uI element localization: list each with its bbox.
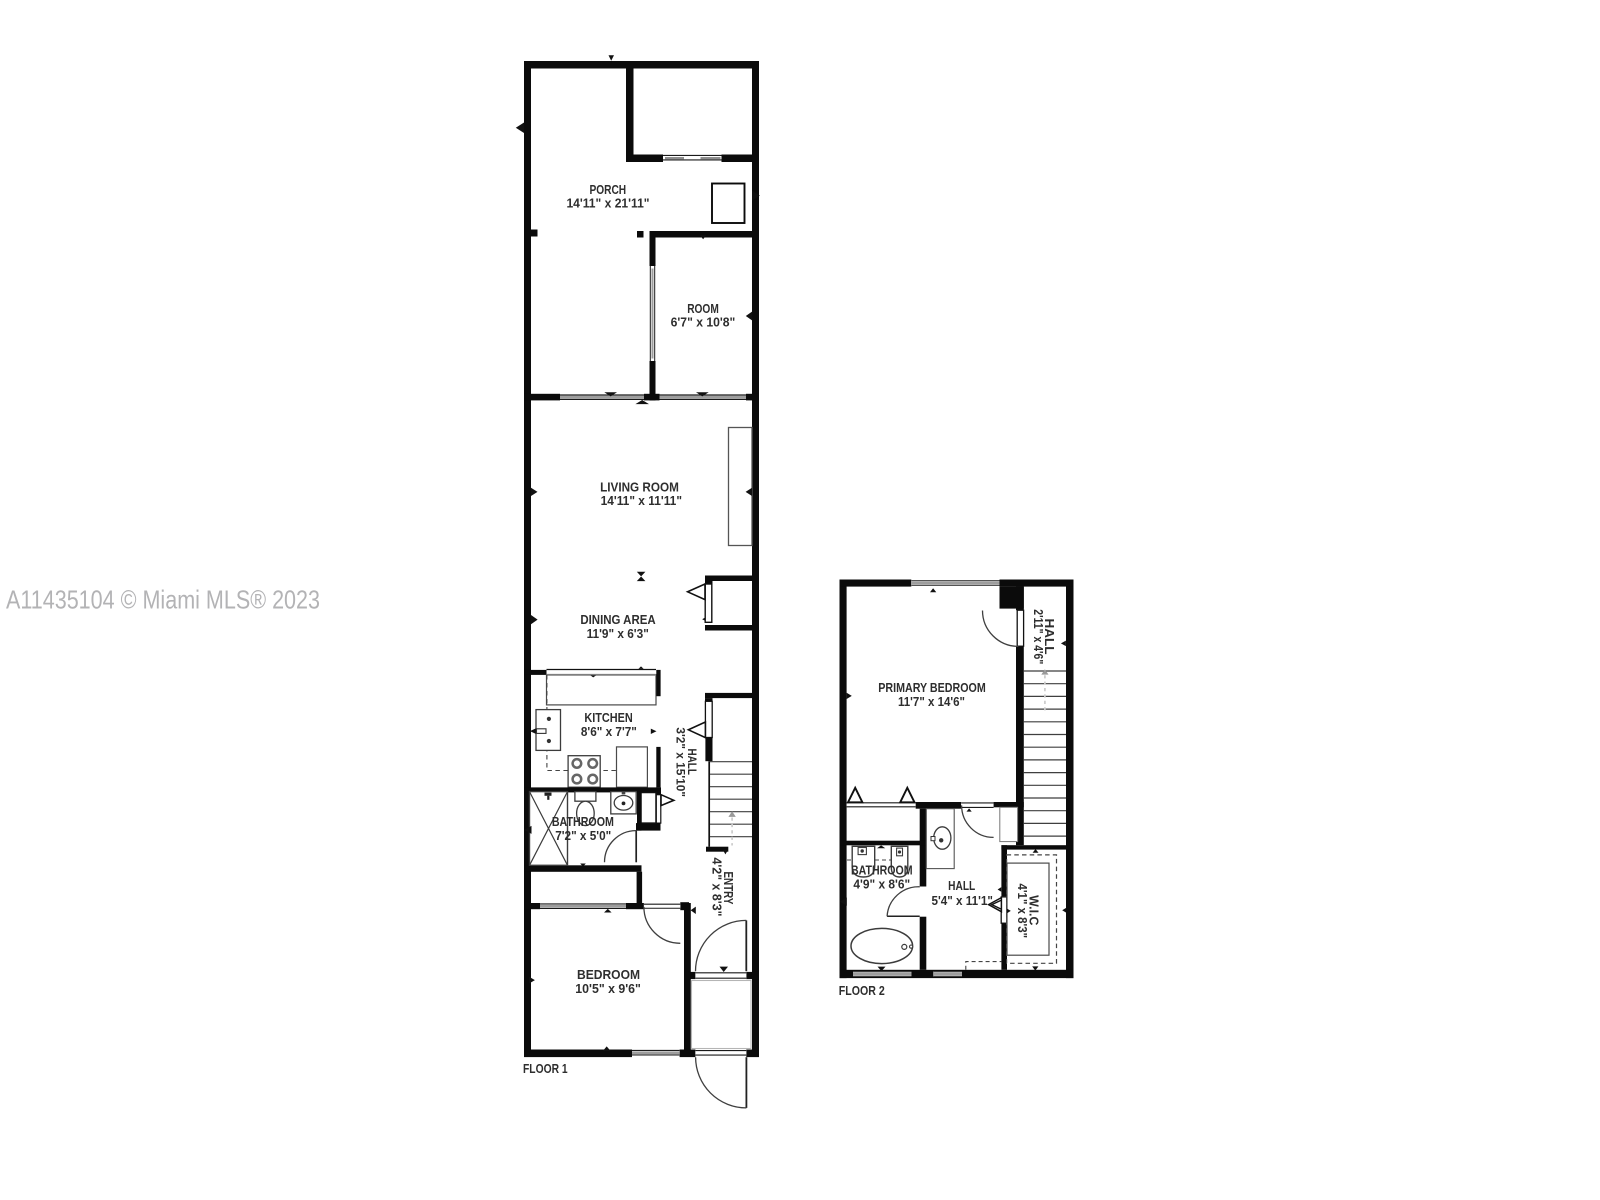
svg-text:HALL: HALL bbox=[685, 749, 697, 775]
svg-text:5'4" x 11'1": 5'4" x 11'1" bbox=[932, 893, 993, 908]
svg-text:DINING AREA: DINING AREA bbox=[580, 612, 655, 627]
svg-text:8'6" x 7'7": 8'6" x 7'7" bbox=[581, 724, 637, 739]
svg-text:FLOOR 1: FLOOR 1 bbox=[523, 1061, 568, 1076]
svg-text:3'2" x 15'10": 3'2" x 15'10" bbox=[673, 727, 685, 797]
svg-text:4'2" x 8'3": 4'2" x 8'3" bbox=[709, 858, 723, 917]
svg-text:7'2" x 5'0": 7'2" x 5'0" bbox=[555, 828, 611, 843]
svg-text:10'5" x 9'6": 10'5" x 9'6" bbox=[575, 981, 641, 996]
svg-text:2'11" x 4'6": 2'11" x 4'6" bbox=[1031, 609, 1045, 664]
svg-text:BATHROOM: BATHROOM bbox=[851, 863, 913, 878]
svg-text:4'9" x 8'6": 4'9" x 8'6" bbox=[853, 876, 910, 891]
svg-text:11'9" x 6'3": 11'9" x 6'3" bbox=[587, 626, 649, 641]
svg-text:A11435104 © Miami MLS® 2023: A11435104 © Miami MLS® 2023 bbox=[6, 585, 320, 615]
svg-text:ROOM: ROOM bbox=[687, 301, 719, 316]
svg-text:PRIMARY BEDROOM: PRIMARY BEDROOM bbox=[878, 680, 986, 695]
svg-text:14'11" x 11'11": 14'11" x 11'11" bbox=[601, 493, 682, 508]
svg-text:4'1" x 8'3": 4'1" x 8'3" bbox=[1015, 883, 1029, 938]
svg-text:14'11" x 21'11": 14'11" x 21'11" bbox=[566, 196, 649, 211]
svg-text:KITCHEN: KITCHEN bbox=[584, 710, 632, 725]
svg-text:11'7" x 14'6": 11'7" x 14'6" bbox=[898, 694, 965, 709]
svg-text:6'7" x 10'8": 6'7" x 10'8" bbox=[671, 315, 736, 330]
svg-text:HALL: HALL bbox=[948, 878, 975, 893]
svg-text:FLOOR 2: FLOOR 2 bbox=[839, 983, 885, 998]
svg-text:BATHROOM: BATHROOM bbox=[552, 814, 614, 829]
